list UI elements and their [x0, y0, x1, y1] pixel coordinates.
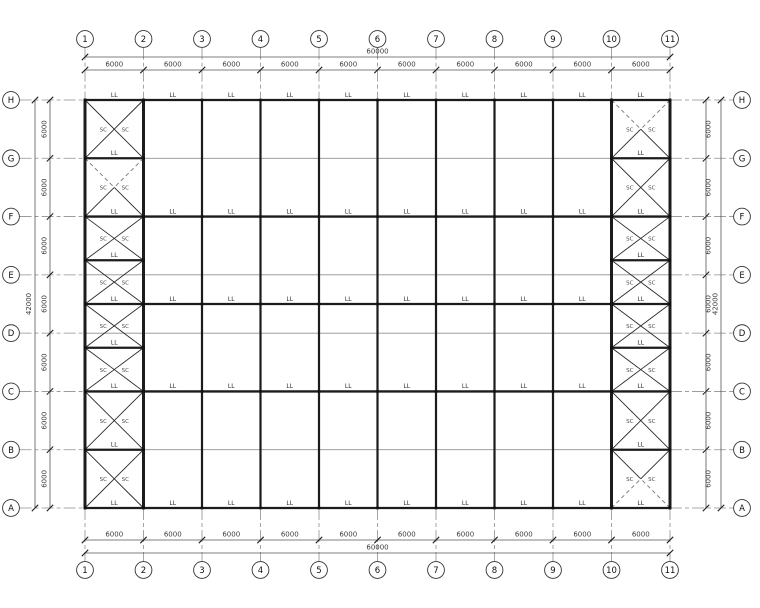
joint-node — [259, 390, 262, 393]
grid-bubble-label: E — [8, 271, 13, 281]
tie-beam-label: LL — [403, 383, 410, 390]
brace-label: SC — [100, 368, 107, 374]
grid-bubble-label: D — [8, 329, 15, 339]
joint-node — [201, 507, 204, 510]
brace-label: SC — [648, 368, 655, 374]
tie-beam-label: LL — [228, 383, 235, 390]
dimensions: 6000600060006000600060006000600060006000… — [25, 48, 724, 557]
brace-diagonal — [641, 348, 670, 370]
joint-node — [318, 303, 321, 306]
brace-label: SC — [100, 324, 107, 330]
tie-beam-label: LL — [111, 296, 118, 303]
grid-bubble-label: 11 — [665, 35, 676, 45]
joint-node — [318, 507, 321, 510]
joint-node — [259, 303, 262, 306]
dim-label: 6000 — [339, 531, 357, 539]
joint-node — [84, 215, 87, 218]
grid-bubble-label: E — [739, 271, 744, 281]
tie-beam-label: LL — [462, 296, 469, 303]
joint-node — [84, 99, 87, 102]
joint-node — [493, 390, 496, 393]
tie-beam-label: LL — [169, 92, 176, 99]
brace-diagonal — [85, 129, 114, 158]
tie-beam-label: LL — [345, 296, 352, 303]
brace-diagonal — [641, 391, 670, 420]
grid-bubble-label: H — [8, 96, 14, 106]
brace-diagonal — [114, 450, 143, 479]
joint-node — [669, 507, 672, 510]
joint-node — [84, 303, 87, 306]
joint-node — [376, 99, 379, 102]
tie-beam-label: LL — [579, 500, 586, 507]
joint-node — [610, 99, 613, 102]
brace-label: SC — [648, 186, 655, 192]
grid-bubble-label: 1 — [82, 566, 87, 576]
dim-label: 6000 — [705, 237, 713, 255]
brace-diagonal-dashed — [612, 100, 641, 129]
grid-bubble-label: F — [740, 213, 745, 223]
joint-node — [669, 346, 672, 349]
dim-label-total: 42000 — [712, 293, 720, 315]
dim-label: 6000 — [41, 470, 49, 488]
grid-bubble-label: A — [8, 504, 14, 514]
tie-beam-label: LL — [579, 383, 586, 390]
dim-label: 6000 — [41, 412, 49, 430]
brace-diagonal — [612, 129, 641, 158]
joint-node — [610, 303, 613, 306]
dim-label: 6000 — [456, 61, 474, 69]
brace-diagonal — [641, 129, 670, 158]
joint-node — [610, 157, 613, 160]
brace-label: SC — [626, 127, 633, 133]
tie-beam-label: LL — [637, 296, 644, 303]
brace-diagonal — [85, 260, 114, 282]
joint-node — [610, 259, 613, 262]
brace-diagonal — [641, 187, 670, 216]
joint-node — [610, 448, 613, 451]
brace-label: SC — [100, 186, 107, 192]
dim-label: 6000 — [105, 531, 123, 539]
grid-bubble-label: G — [8, 154, 15, 164]
brace-diagonal — [114, 348, 143, 370]
joint-node — [201, 99, 204, 102]
brace-label: SC — [122, 477, 129, 483]
tie-beam-label: LL — [169, 383, 176, 390]
grid-bubble-label: 7 — [433, 35, 438, 45]
dim-label: 6000 — [398, 61, 416, 69]
joint-node — [552, 390, 555, 393]
tie-beam-label: LL — [111, 500, 118, 507]
dim-label: 6000 — [222, 531, 240, 539]
joint-node — [142, 215, 145, 218]
brace-label: SC — [648, 419, 655, 425]
brace-label: SC — [648, 127, 655, 133]
brace-diagonal — [641, 304, 670, 326]
brace-diagonal — [641, 421, 670, 450]
brace-label: SC — [626, 280, 633, 286]
brace-diagonal-dashed — [85, 158, 114, 187]
dim-label: 6000 — [105, 61, 123, 69]
brace-diagonal — [612, 187, 641, 216]
dim-label: 6000 — [281, 61, 299, 69]
grid-bubble-label: 4 — [258, 566, 263, 576]
joint-node — [201, 303, 204, 306]
brace-diagonal — [612, 158, 641, 187]
dim-label: 6000 — [222, 61, 240, 69]
joint-node — [84, 390, 87, 393]
brace-label: SC — [648, 477, 655, 483]
joint-node — [142, 259, 145, 262]
grid-bubble-label: C — [8, 388, 14, 398]
tie-beam-label: LL — [579, 208, 586, 215]
brace-diagonal — [85, 217, 114, 239]
tie-beam-label: LL — [286, 500, 293, 507]
brace-diagonal — [85, 421, 114, 450]
brace-diagonal — [641, 260, 670, 282]
brace-diagonal — [114, 304, 143, 326]
structural-members — [84, 99, 672, 510]
brace-diagonal — [85, 187, 114, 216]
tie-beam-label: LL — [462, 500, 469, 507]
tie-beam-label: LL — [579, 92, 586, 99]
grid-bubble-label: B — [8, 446, 14, 456]
dim-label: 6000 — [398, 531, 416, 539]
tie-beam-label: LL — [228, 500, 235, 507]
grid-bubble-label: 10 — [606, 35, 617, 45]
grid-bubble-label: C — [739, 388, 745, 398]
tie-beam-label: LL — [286, 383, 293, 390]
brace-label: SC — [122, 127, 129, 133]
roof-bracing-plan: SCSCLLSCSCSCSCLLSCSCSCSCLLSCSCSCSCLLSCSC… — [0, 0, 760, 608]
joint-node — [201, 215, 204, 218]
grid-bubble-label: F — [9, 213, 14, 223]
joint-node — [552, 99, 555, 102]
grid-bubble-label: 5 — [316, 566, 321, 576]
tie-beam-label: LL — [520, 500, 527, 507]
brace-label: SC — [100, 280, 107, 286]
joint-node — [318, 390, 321, 393]
grid-bubble-label: G — [739, 154, 746, 164]
tie-beam-label: LL — [228, 208, 235, 215]
joint-node — [669, 448, 672, 451]
brace-diagonal — [85, 450, 114, 479]
tie-beam-label: LL — [462, 92, 469, 99]
tie-beam-label: LL — [111, 252, 118, 259]
tie-beam-label: LL — [403, 92, 410, 99]
dim-label: 6000 — [705, 412, 713, 430]
dim-label-total: 60000 — [366, 544, 388, 552]
brace-diagonal-dashed — [641, 100, 670, 129]
joint-node — [376, 390, 379, 393]
joint-node — [669, 215, 672, 218]
brace-diagonal — [612, 421, 641, 450]
grid-bubble-label: 10 — [606, 566, 617, 576]
joint-node — [84, 507, 87, 510]
dim-label: 6000 — [41, 179, 49, 197]
tie-beam-label: LL — [111, 340, 118, 347]
dim-label: 6000 — [41, 237, 49, 255]
brace-label: SC — [626, 237, 633, 243]
brace-diagonal — [641, 158, 670, 187]
grid-bubble-label: 9 — [550, 35, 555, 45]
brace-diagonal — [85, 100, 114, 129]
brace-diagonal — [114, 187, 143, 216]
joint-node — [552, 303, 555, 306]
dim-label: 6000 — [573, 61, 591, 69]
brace-diagonal-dashed — [641, 479, 670, 508]
dim-label-total: 60000 — [366, 48, 388, 56]
joint-node — [669, 259, 672, 262]
brace-label: SC — [100, 127, 107, 133]
joint-node — [84, 259, 87, 262]
joint-node — [610, 346, 613, 349]
brace-label: SC — [122, 324, 129, 330]
joint-node — [493, 507, 496, 510]
joint-node — [435, 507, 438, 510]
tie-beam-label: LL — [637, 92, 644, 99]
joint-node — [610, 215, 613, 218]
joint-node — [142, 346, 145, 349]
grid-bubble-label: 8 — [492, 566, 497, 576]
tie-beam-label: LL — [228, 296, 235, 303]
brace-diagonal — [85, 304, 114, 326]
brace-diagonal — [641, 217, 670, 239]
tie-beam-label: LL — [462, 383, 469, 390]
dim-label: 6000 — [41, 353, 49, 371]
tie-beam-label: LL — [111, 92, 118, 99]
tie-beam-label: LL — [169, 500, 176, 507]
tie-beam-label: LL — [111, 208, 118, 215]
tie-beam-label: LL — [403, 296, 410, 303]
tie-beam-label: LL — [345, 500, 352, 507]
dim-label: 6000 — [164, 531, 182, 539]
brace-diagonal-dashed — [114, 158, 143, 187]
grid-bubble-label: 8 — [492, 35, 497, 45]
brace-diagonal — [114, 217, 143, 239]
tie-beam-label: LL — [286, 296, 293, 303]
joint-node — [84, 157, 87, 160]
joint-node — [142, 448, 145, 451]
joint-node — [493, 303, 496, 306]
brace-label: SC — [626, 186, 633, 192]
joint-node — [435, 390, 438, 393]
grid-bubble-label: 11 — [665, 566, 676, 576]
tie-beam-label: LL — [520, 296, 527, 303]
dim-label: 6000 — [281, 531, 299, 539]
tie-beam-label: LL — [520, 383, 527, 390]
brace-label: SC — [648, 324, 655, 330]
joint-node — [435, 99, 438, 102]
grid-bubble-label: H — [739, 96, 745, 106]
joint-node — [610, 507, 613, 510]
dim-label: 6000 — [705, 470, 713, 488]
brace-label: SC — [122, 419, 129, 425]
brace-diagonal — [114, 391, 143, 420]
grid-bubble-label: 3 — [199, 35, 204, 45]
dim-label: 6000 — [164, 61, 182, 69]
brace-diagonal — [85, 391, 114, 420]
joint-node — [259, 507, 262, 510]
brace-label: SC — [122, 280, 129, 286]
tie-beam-label: LL — [111, 442, 118, 449]
joint-node — [84, 346, 87, 349]
tie-beam-label: LL — [345, 92, 352, 99]
tie-beam-label: LL — [345, 208, 352, 215]
joint-node — [552, 507, 555, 510]
joint-node — [669, 99, 672, 102]
joint-node — [84, 448, 87, 451]
grid-bubble-label: 1 — [82, 35, 87, 45]
joint-node — [552, 215, 555, 218]
tie-beam-label: LL — [520, 92, 527, 99]
tie-beam-label: LL — [111, 150, 118, 157]
joint-node — [493, 99, 496, 102]
brace-diagonal — [114, 479, 143, 508]
grid-bubble-label: 9 — [550, 566, 555, 576]
brace-diagonal — [612, 260, 641, 282]
tie-beam-label: LL — [637, 340, 644, 347]
brace-label: SC — [100, 419, 107, 425]
joint-node — [201, 390, 204, 393]
grid-bubble-label: 6 — [375, 566, 380, 576]
brace-diagonal — [85, 479, 114, 508]
joint-node — [669, 390, 672, 393]
brace-diagonal — [612, 304, 641, 326]
brace-label: SC — [122, 237, 129, 243]
brace-diagonal-dashed — [612, 479, 641, 508]
grid-bubble-label: 2 — [141, 566, 146, 576]
dim-label: 6000 — [339, 61, 357, 69]
grid-bubble-label: A — [739, 504, 745, 514]
joint-node — [435, 303, 438, 306]
tie-beam-label: LL — [637, 500, 644, 507]
grid-bubble-label: 3 — [199, 566, 204, 576]
joint-node — [435, 215, 438, 218]
dim-label: 6000 — [705, 120, 713, 138]
brace-label: SC — [122, 368, 129, 374]
brace-label: SC — [100, 237, 107, 243]
dim-label: 6000 — [705, 179, 713, 197]
grid-bubble-label: 7 — [433, 566, 438, 576]
tie-beam-label: LL — [403, 500, 410, 507]
joint-node — [669, 303, 672, 306]
dim-label-total: 42000 — [25, 293, 33, 315]
joint-node — [259, 215, 262, 218]
grid-bubble-label: D — [739, 329, 746, 339]
joint-node — [142, 303, 145, 306]
tie-beam-label: LL — [345, 383, 352, 390]
joint-node — [142, 157, 145, 160]
tie-beam-label: LL — [520, 208, 527, 215]
brace-diagonal — [85, 348, 114, 370]
brace-diagonal — [114, 100, 143, 129]
joint-node — [142, 390, 145, 393]
tie-beam-label: LL — [169, 296, 176, 303]
brace-label: SC — [626, 324, 633, 330]
joint-node — [376, 507, 379, 510]
tie-beam-label: LL — [286, 208, 293, 215]
joint-node — [259, 99, 262, 102]
tie-beam-label: LL — [286, 92, 293, 99]
brace-label: SC — [626, 368, 633, 374]
tie-beam-label: LL — [228, 92, 235, 99]
grid-bubble-label: B — [739, 446, 745, 456]
brace-diagonal — [114, 129, 143, 158]
tie-beam-label: LL — [111, 383, 118, 390]
brace-label: SC — [648, 280, 655, 286]
dim-label: 6000 — [515, 61, 533, 69]
dim-label: 6000 — [456, 531, 474, 539]
brace-diagonal — [641, 450, 670, 479]
brace-diagonal — [612, 348, 641, 370]
dim-label: 6000 — [705, 353, 713, 371]
brace-diagonal — [612, 391, 641, 420]
dim-label: 6000 — [632, 61, 650, 69]
brace-diagonal — [612, 450, 641, 479]
grid-bubble-label: 4 — [258, 35, 263, 45]
brace-label: SC — [626, 477, 633, 483]
brace-label: SC — [648, 237, 655, 243]
joint-node — [142, 99, 145, 102]
brace-diagonal — [114, 421, 143, 450]
brace-label: SC — [100, 477, 107, 483]
grid-bubble-label: 6 — [375, 35, 380, 45]
grid-bubble-label: 2 — [141, 35, 146, 45]
dim-label: 6000 — [41, 295, 49, 313]
brace-label: SC — [626, 419, 633, 425]
dim-label: 6000 — [573, 531, 591, 539]
dim-label: 6000 — [41, 120, 49, 138]
dim-label: 6000 — [632, 531, 650, 539]
tie-beam-label: LL — [637, 252, 644, 259]
brace-diagonal — [612, 217, 641, 239]
brace-diagonal — [114, 260, 143, 282]
joint-node — [318, 215, 321, 218]
joint-node — [376, 215, 379, 218]
grid-bubble-label: 5 — [316, 35, 321, 45]
joint-node — [669, 157, 672, 160]
tie-beam-label: LL — [462, 208, 469, 215]
tie-beam-label: LL — [579, 296, 586, 303]
joint-node — [142, 507, 145, 510]
brace-label: SC — [122, 186, 129, 192]
dim-label: 6000 — [515, 531, 533, 539]
tie-beam-label: LL — [637, 383, 644, 390]
joint-node — [376, 303, 379, 306]
tie-beam-label: LL — [637, 442, 644, 449]
tie-beam-label: LL — [637, 150, 644, 157]
tie-beam-label: LL — [403, 208, 410, 215]
cad-canvas: SCSCLLSCSCSCSCLLSCSCSCSCLLSCSCSCSCLLSCSC… — [0, 0, 760, 608]
tie-beam-label: LL — [637, 208, 644, 215]
joint-node — [493, 215, 496, 218]
joint-node — [318, 99, 321, 102]
joint-node — [610, 390, 613, 393]
tie-beam-label: LL — [169, 208, 176, 215]
